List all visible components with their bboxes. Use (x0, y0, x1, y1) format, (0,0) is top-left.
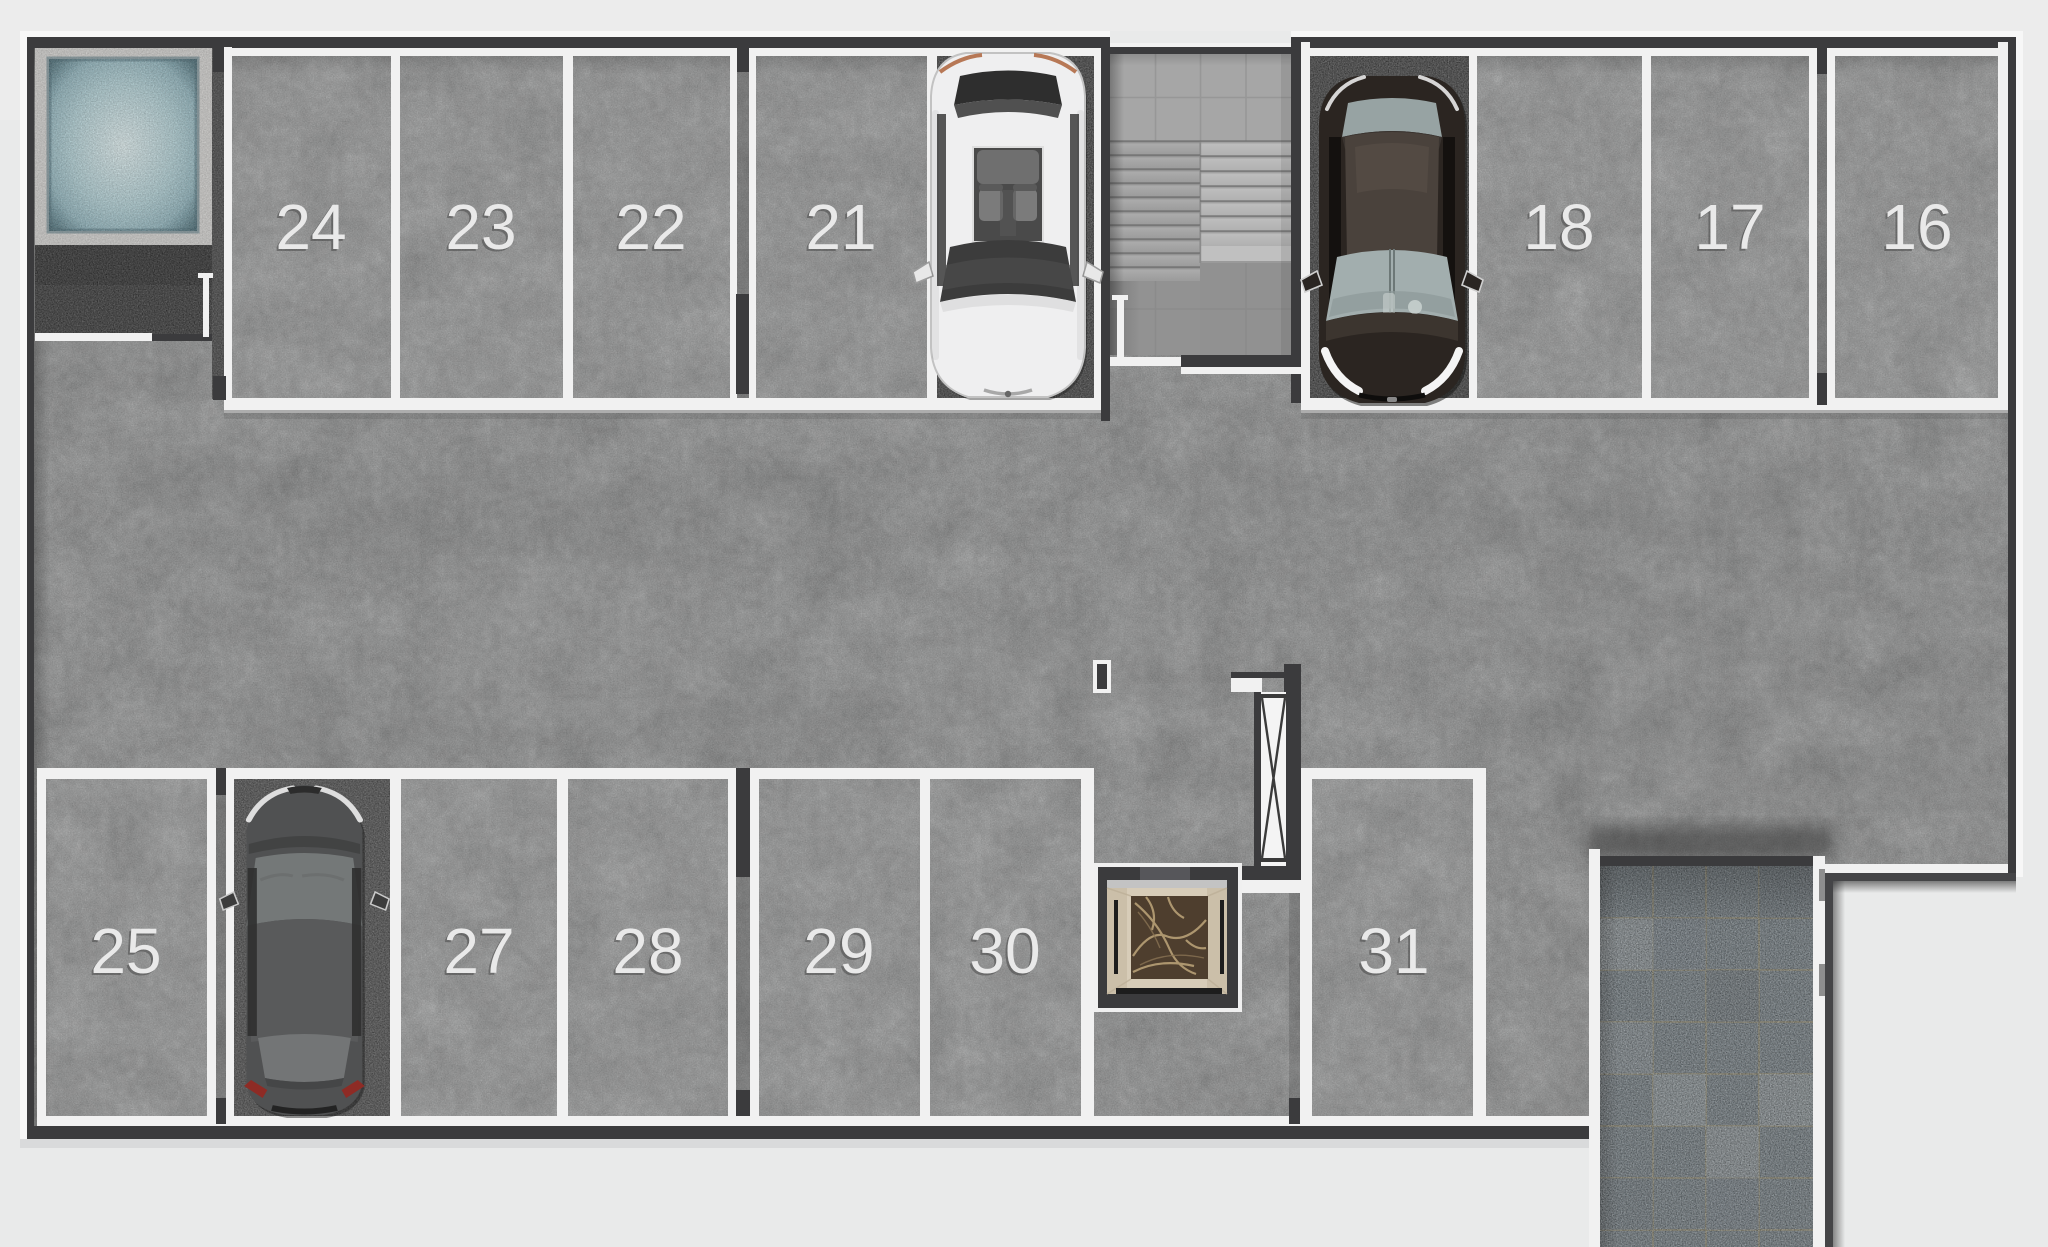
svg-text:29: 29 (803, 915, 874, 987)
svg-text:25: 25 (90, 915, 161, 987)
svg-text:28: 28 (612, 915, 683, 987)
svg-text:30: 30 (969, 915, 1040, 987)
svg-text:17: 17 (1694, 191, 1765, 263)
svg-text:23: 23 (445, 191, 516, 263)
svg-text:21: 21 (805, 191, 876, 263)
svg-text:27: 27 (443, 915, 514, 987)
svg-text:22: 22 (615, 191, 686, 263)
svg-text:18: 18 (1523, 191, 1594, 263)
svg-text:31: 31 (1358, 915, 1429, 987)
svg-text:24: 24 (275, 191, 346, 263)
svg-text:16: 16 (1881, 191, 1952, 263)
